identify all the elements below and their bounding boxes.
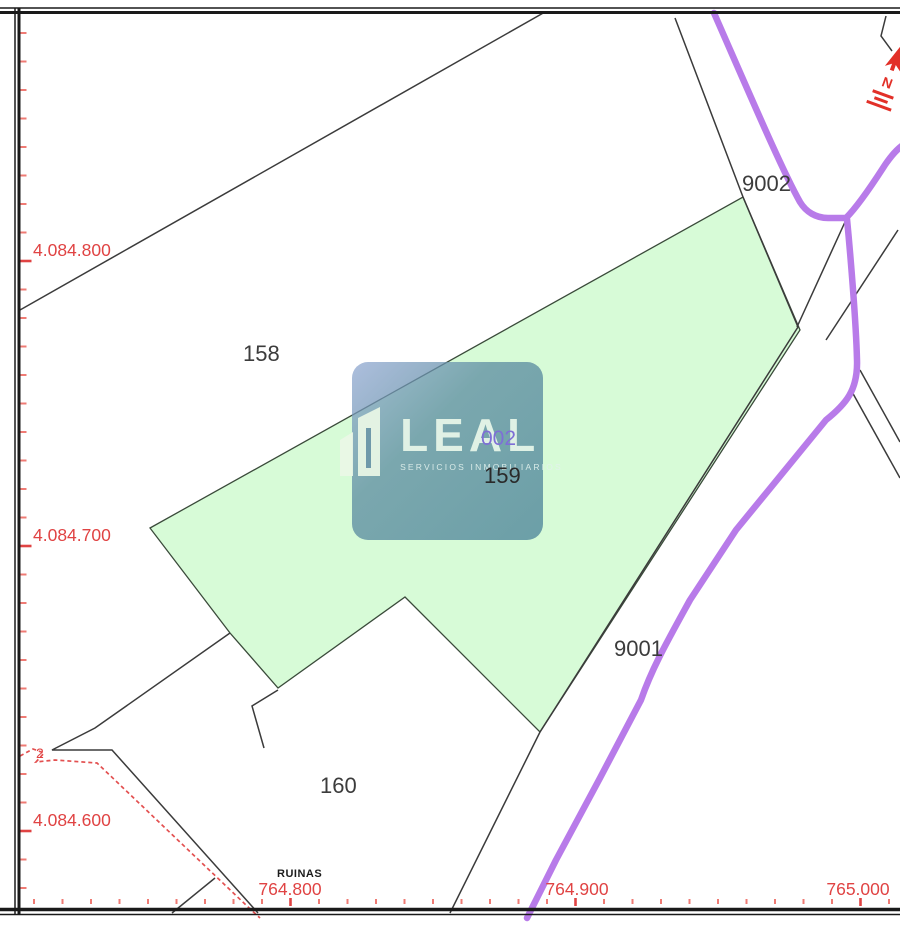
parcel-label-159: 159 (484, 465, 521, 487)
boundary-line (826, 230, 898, 340)
cadastral-map: N 158 160 9001 9002 2 RUINAS 4.084.800 4… (0, 0, 900, 936)
boundary-line (52, 633, 258, 913)
boundary-line (252, 690, 278, 748)
road-branch-path (846, 145, 900, 218)
road-code-label-002: 002 (481, 428, 516, 449)
leal-buildings-icon (332, 400, 394, 484)
watermark-tagline: SERVICIOS INMOBILIARIOS (400, 462, 563, 472)
boundary-line (20, 12, 545, 310)
parcel-label-160: 160 (320, 773, 357, 798)
dashed-line (20, 749, 260, 918)
boundary-line (881, 16, 892, 51)
north-arrow-icon: N (866, 42, 900, 112)
parcel-label-9001: 9001 (614, 636, 663, 661)
parcel-label-158: 158 (243, 341, 280, 366)
x-axis-label-764900: 764.900 (545, 879, 609, 899)
x-axis-label-764800: 764.800 (258, 879, 322, 899)
x-axis-label-765000: 765.000 (826, 879, 890, 899)
boundary-line (860, 370, 900, 442)
parcel-label-9002: 9002 (742, 171, 791, 196)
parcel-label-2: 2 (36, 745, 44, 761)
boundary-line (797, 222, 845, 327)
leal-watermark: LEAL SERVICIOS INMOBILIARIOS (352, 362, 543, 540)
ruins-boundary-dashed (20, 749, 260, 918)
boundary-line (851, 390, 900, 478)
north-letter: N (880, 73, 895, 91)
y-axis-label-4084600: 4.084.600 (33, 810, 111, 830)
y-axis-label-4084700: 4.084.700 (33, 525, 111, 545)
y-axis-label-4084800: 4.084.800 (33, 240, 111, 260)
